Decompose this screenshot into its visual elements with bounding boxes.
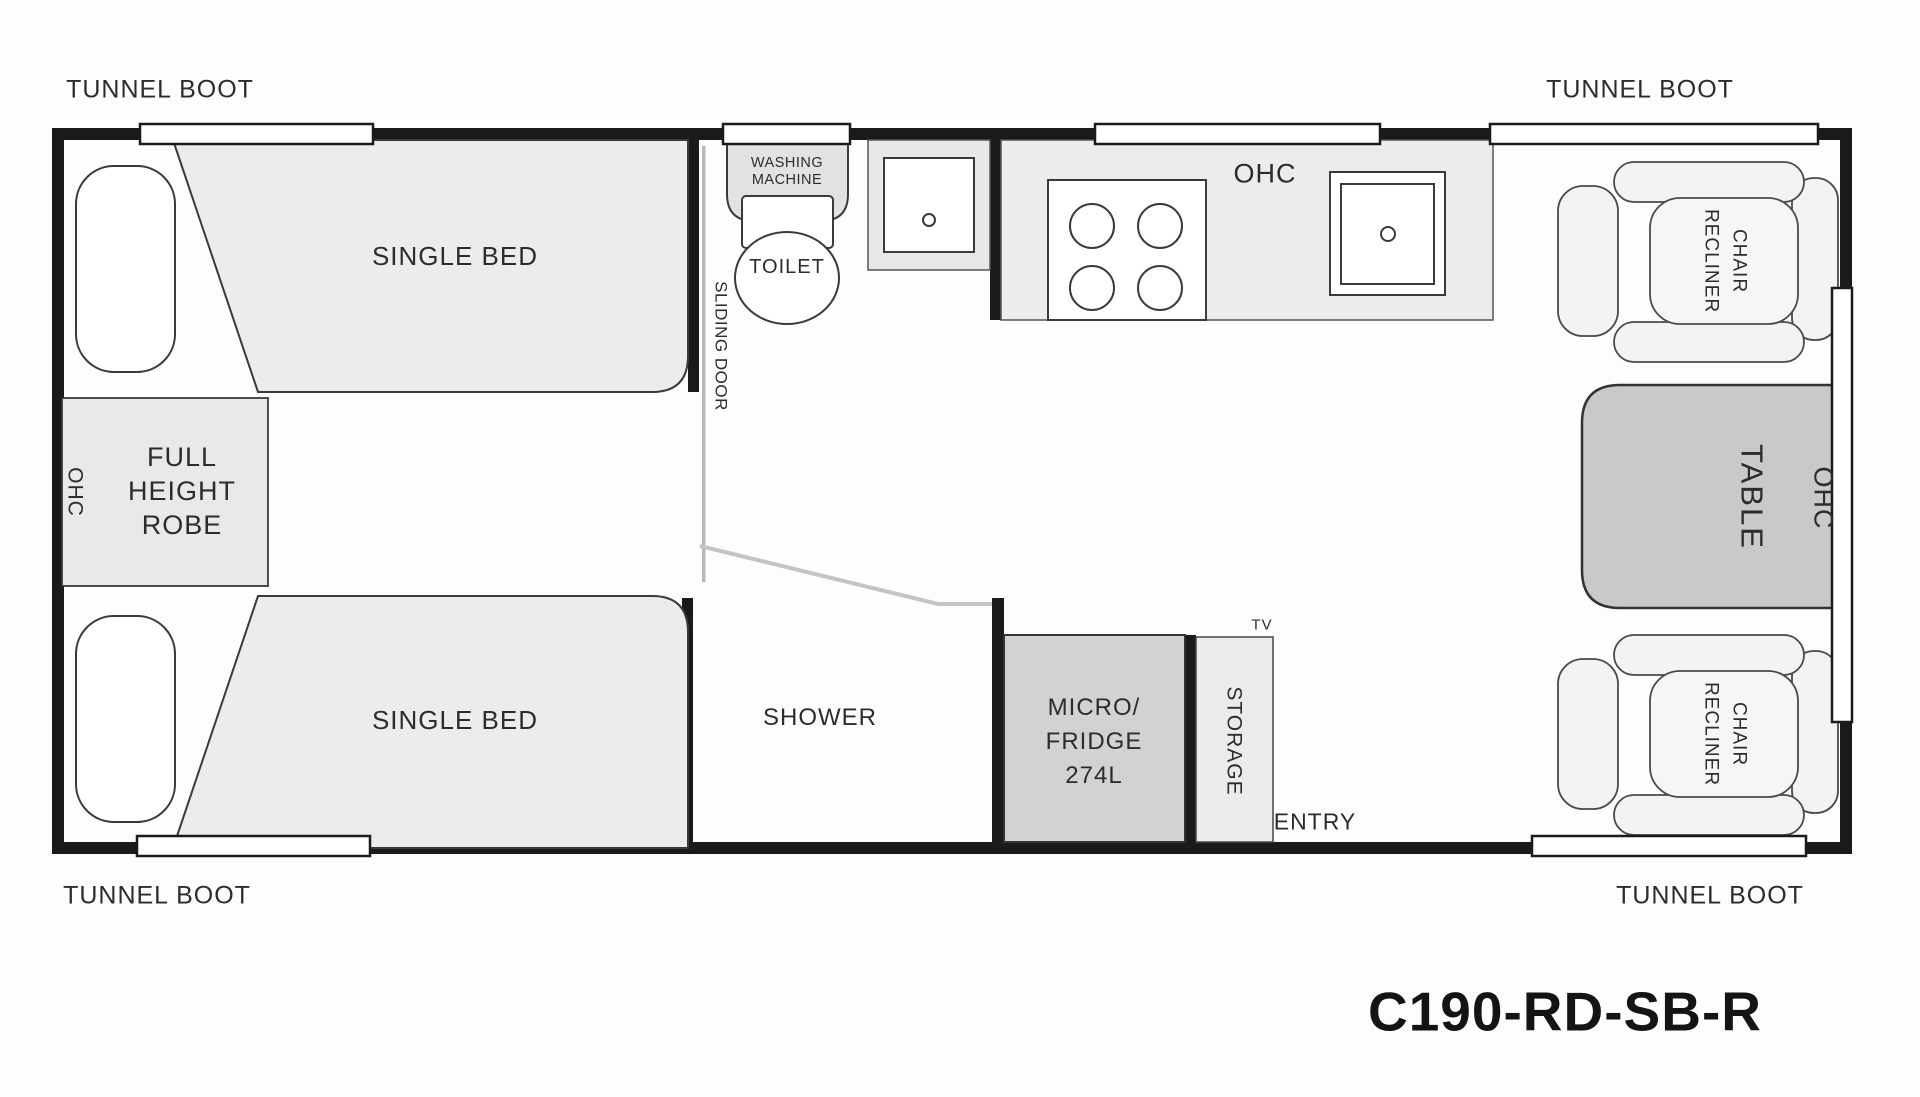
stove-cooktop [1048, 180, 1206, 320]
partition-shower-right [992, 598, 1004, 844]
stove-burner [1138, 266, 1182, 310]
window-top-bathroom [723, 124, 850, 144]
tunnel-boot-label-top-left: TUNNEL BOOT [66, 78, 254, 103]
partition-micro-storage [1185, 635, 1196, 842]
washing-machine-label: WASHING MACHINE [751, 155, 823, 189]
sliding-door-line [702, 146, 706, 582]
recliner-chair-label-bottom-line1: RECLINER [1702, 682, 1721, 786]
washing-machine-label-line2: MACHINE [751, 172, 823, 189]
recliner-chair-label-top-line2: CHAIR [1730, 229, 1749, 293]
tv-label: TV [1251, 618, 1272, 633]
window-top-right [1490, 124, 1818, 144]
single-bed-label-top: SINGLE BED [372, 243, 538, 269]
toilet-label: TOILET [749, 257, 825, 277]
chair-seat [1650, 671, 1798, 797]
partition-bathroom-kitchen [990, 140, 1001, 320]
single-bed-label-bottom: SINGLE BED [372, 707, 538, 733]
micro-fridge-label-line3: 274L [1046, 759, 1143, 793]
chair-armrest [1614, 322, 1804, 362]
chair-armrest [1614, 795, 1804, 835]
window-bottom-right [1532, 836, 1806, 856]
bathroom-sink-drain [923, 214, 935, 226]
tunnel-boot-label-bottom-right: TUNNEL BOOT [1616, 884, 1804, 909]
sliding-door-label: SLIDING DOOR [713, 281, 730, 411]
model-code-label: C190-RD-SB-R [1368, 985, 1762, 1040]
full-height-robe-label: FULL HEIGHT ROBE [128, 440, 236, 542]
floorplan-drawing [0, 0, 1920, 1097]
robe-label-line3: ROBE [128, 508, 236, 542]
stove-burner [1138, 204, 1182, 248]
tunnel-boot-label-bottom-left: TUNNEL BOOT [63, 884, 251, 909]
stove-burner [1070, 266, 1114, 310]
partition-bedroom-bathroom [688, 140, 699, 392]
chair-back-cushion [1558, 659, 1618, 809]
micro-fridge-label-line2: FRIDGE [1046, 725, 1143, 759]
recliner-chair-label-bottom-line2: CHAIR [1730, 702, 1749, 766]
shower-screen [700, 546, 992, 604]
kitchen-ohc-label: OHC [1234, 161, 1297, 188]
window-top-left [140, 124, 373, 144]
toilet-bowl [735, 232, 839, 324]
caravan-floorplan: TUNNEL BOOT TUNNEL BOOT TUNNEL BOOT TUNN… [0, 0, 1920, 1097]
window-top-kitchen [1095, 124, 1380, 144]
stove-burner [1070, 204, 1114, 248]
micro-fridge-label-line1: MICRO/ [1046, 691, 1143, 725]
lounge-ohc-label: OHC [1810, 467, 1837, 530]
table-label: TABLE [1737, 444, 1768, 550]
chair-back-cushion [1558, 186, 1618, 336]
micro-fridge-label: MICRO/ FRIDGE 274L [1046, 691, 1143, 793]
storage-label: STORAGE [1224, 686, 1245, 795]
pillow-bottom [76, 616, 175, 822]
recliner-chair-bottom [1558, 635, 1838, 835]
pillow-top [76, 166, 175, 372]
recliner-chair-top [1558, 162, 1838, 362]
robe-label-line1: FULL [128, 440, 236, 474]
entry-label: ENTRY [1274, 811, 1357, 834]
robe-label-line2: HEIGHT [128, 474, 236, 508]
chair-armrest [1614, 635, 1804, 675]
kitchen-sink-drain [1381, 227, 1395, 241]
bathroom-sink [884, 158, 974, 252]
recliner-chair-label-top-line1: RECLINER [1702, 209, 1721, 313]
chair-seat [1650, 198, 1798, 324]
chair-armrest [1614, 162, 1804, 202]
window-bottom-left [137, 836, 370, 856]
shower-label: SHOWER [763, 706, 877, 730]
tunnel-boot-label-top-right: TUNNEL BOOT [1546, 78, 1734, 103]
robe-ohc-label: OHC [65, 467, 86, 517]
washing-machine-label-line1: WASHING [751, 155, 823, 172]
